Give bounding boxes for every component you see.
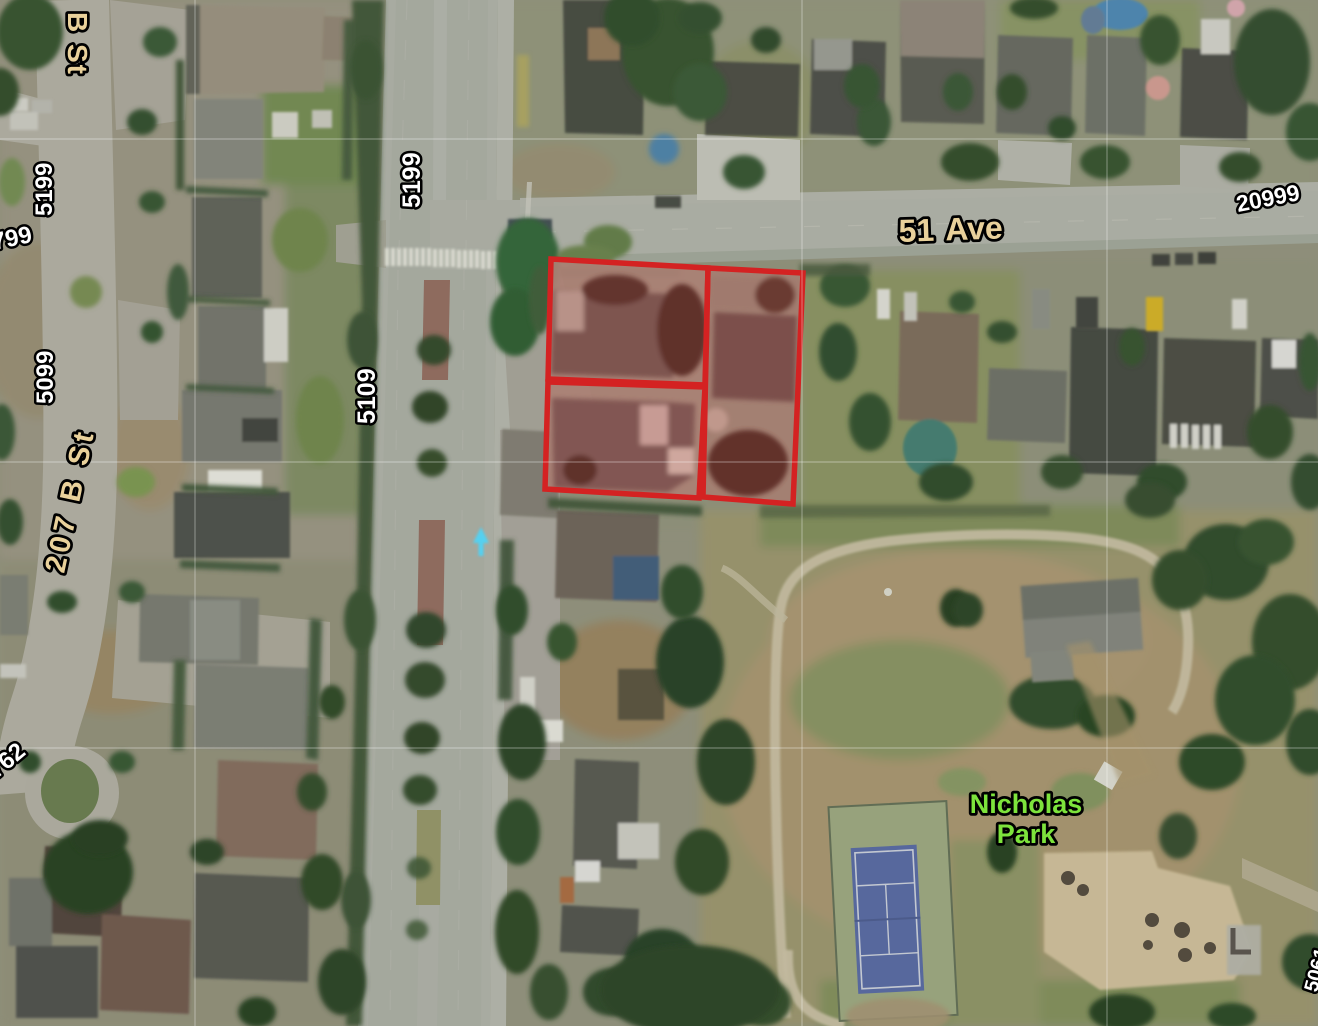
svg-text:Park: Park [997,819,1057,849]
svg-text:51Ave: 51Ave [898,209,1003,249]
svg-text:Nicholas: Nicholas [970,789,1083,819]
svg-text:5099: 5099 [32,351,59,404]
svg-text:5109: 5109 [353,368,381,424]
svg-text:B St: B St [62,12,93,76]
svg-text:5199: 5199 [31,163,58,216]
svg-text:5199: 5199 [398,152,426,208]
